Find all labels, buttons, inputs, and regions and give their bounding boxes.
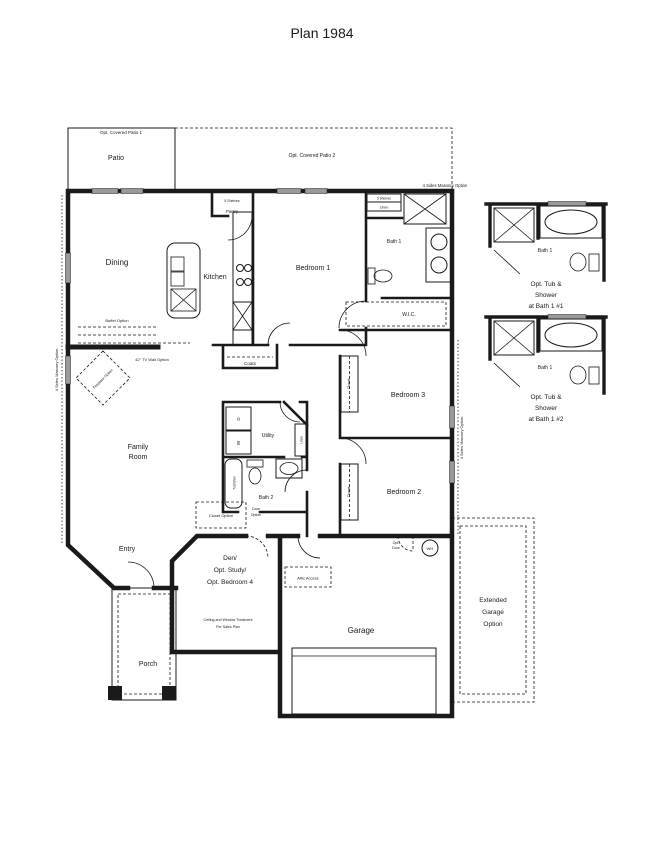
tub-icon <box>545 210 597 234</box>
porch-column <box>162 686 176 700</box>
dining-options: Buffet Option 42" TV Wall Option Firepla… <box>76 318 190 405</box>
bedroom3-label: Bedroom 3 <box>391 392 425 399</box>
family-room-label1: Family <box>128 444 149 451</box>
window <box>66 356 71 384</box>
door-option-label1: Door <box>252 507 261 511</box>
closet3-label: Closet <box>347 378 351 390</box>
bath2-label: Bath 2 <box>259 495 274 501</box>
bath2-fixtures: Tub/Shwr Bath 2 <box>225 459 302 508</box>
room-labels: Dining Kitchen Bedroom 1 Bedroom 3 Bedro… <box>106 258 426 668</box>
floor-plan-canvas: Plan 1984 Opt. Covered Patio 1 Patio Opt… <box>0 0 650 842</box>
coats-label: Coats <box>244 361 257 366</box>
garage-door <box>292 648 436 714</box>
door-option-swing <box>246 536 268 558</box>
patio2-label: Opt. Covered Patio 2 <box>289 153 336 159</box>
opt-door-label2: Door <box>392 546 401 550</box>
refrigerator-x <box>233 302 252 330</box>
porch-column <box>108 686 122 700</box>
entry-label: Entry <box>119 546 136 553</box>
bedroom2-label: Bedroom 2 <box>387 489 421 496</box>
den-label2: Opt. Study/ <box>214 567 247 574</box>
door-swing <box>280 402 300 422</box>
sink-icon <box>280 463 298 475</box>
door-swing <box>298 536 320 558</box>
porch-label: Porch <box>139 661 157 668</box>
porch-inner <box>118 594 170 694</box>
detail1-caption2: Shower <box>535 292 558 299</box>
tub-label: Tub/Shwr <box>233 475 237 489</box>
patio1-header-label: Opt. Covered Patio 1 <box>100 130 143 135</box>
den-area: Den/ Opt. Study/ Opt. Bedroom 4 Ceiling … <box>204 555 254 629</box>
wic-label: W.I.C. <box>402 312 416 318</box>
toilet-tank-icon <box>247 460 263 467</box>
masonry-right-label: 4 Sides Masonry Option <box>459 417 464 460</box>
utility-fixtures: D W Linen Utility <box>226 407 306 456</box>
floor-plan-page: Plan 1984 Opt. Covered Patio 1 Patio Opt… <box>0 0 650 842</box>
linen-shelves-label: 5 Shelves <box>377 197 391 201</box>
door-swing <box>340 330 366 356</box>
door-swing <box>339 301 366 328</box>
detail-bath-option-1: Bath 1 Opt. Tub & Shower at Bath 1 #1 <box>486 202 606 311</box>
window <box>66 253 71 283</box>
bath1-label: Bath 1 <box>387 239 402 245</box>
pantry-shelves-label: 5 Shelves <box>224 199 240 203</box>
den-note1: Ceiling and Window Treatment <box>204 618 253 622</box>
shower-x <box>494 208 534 242</box>
ext-garage-label1: Extended <box>479 597 507 604</box>
opt-door-label1: Opt. <box>393 541 400 545</box>
cooktop-burner-icon <box>245 265 252 272</box>
window <box>548 315 586 320</box>
closet2-label: Closet <box>347 486 351 498</box>
page-title: Plan 1984 <box>290 25 353 41</box>
attic-access-label: Attic Access <box>297 576 319 581</box>
garage-fixtures: Attic Access WH Opt. Door <box>285 536 438 714</box>
utility-label: Utility <box>262 433 275 439</box>
tub-platform <box>540 206 602 238</box>
door-swing <box>340 438 366 464</box>
detail1-door <box>494 250 520 274</box>
wic-shelves <box>346 302 446 326</box>
cooktop-burner-icon <box>237 279 244 286</box>
door-swing <box>268 323 290 345</box>
exterior-wall-path <box>68 191 452 716</box>
window <box>277 189 301 194</box>
vanity-counter <box>426 228 452 282</box>
cooktop-burner-icon <box>237 265 244 272</box>
fireplace-option-label: Fireplace Option <box>92 368 113 389</box>
detail2-door <box>494 363 520 387</box>
washer-label: W <box>236 440 241 445</box>
buffet-option-label: Buffet Option <box>105 318 128 323</box>
detail1-caption3: at Bath 1 #1 <box>528 303 563 310</box>
shower-x <box>404 194 446 224</box>
extended-garage-option: Extended Garage Option <box>452 518 534 702</box>
pantry-area: 5 Shelves Pantry <box>224 199 240 214</box>
porch-structure <box>108 588 176 700</box>
tub-platform <box>540 319 602 351</box>
toilet-bowl-icon <box>570 366 586 384</box>
door-swing <box>285 470 307 492</box>
window <box>305 189 327 194</box>
toilet-bowl-icon <box>374 270 392 282</box>
island-sink-icon <box>171 272 184 286</box>
dishwasher-x <box>171 289 196 311</box>
detail2-room-label: Bath 1 <box>538 365 553 371</box>
window <box>121 189 143 194</box>
dryer-label: D <box>236 417 241 421</box>
window <box>450 406 455 428</box>
family-room-label2: Room <box>129 454 148 461</box>
garage-label: Garage <box>348 626 375 635</box>
patio1-label: Patio <box>108 155 124 162</box>
door-option-label2: Option <box>251 513 262 517</box>
detail2-caption3: at Bath 1 #2 <box>528 416 563 423</box>
ext-garage-label2: Garage <box>482 609 504 616</box>
sink-icon <box>431 234 447 250</box>
window <box>450 461 455 483</box>
detail1-room-label: Bath 1 <box>538 248 553 254</box>
buffet-dashes <box>78 327 190 343</box>
door-swing <box>128 562 154 588</box>
den-label3: Opt. Bedroom 4 <box>207 579 253 586</box>
patio-area: Opt. Covered Patio 1 Patio Opt. Covered … <box>68 128 452 191</box>
ext-garage-label3: Option <box>483 621 503 628</box>
bedroom1-label: Bedroom 1 <box>296 265 330 272</box>
sink-icon <box>431 257 447 273</box>
window <box>92 189 118 194</box>
water-heater-label: WH <box>427 546 434 551</box>
masonry-left-label: 4 Sides Masonry Option <box>54 349 59 392</box>
bath1-fixtures: 5 Shelves Linen Bath 1 <box>367 194 452 284</box>
shower-x <box>494 321 534 355</box>
island-sink-icon <box>171 257 184 271</box>
dining-label: Dining <box>106 258 129 267</box>
detail2-caption1: Opt. Tub & <box>530 394 562 401</box>
toilet-tank-icon <box>589 254 599 271</box>
tub-icon <box>545 323 597 347</box>
detail1-caption1: Opt. Tub & <box>530 281 562 288</box>
linen-label: Linen <box>380 206 389 210</box>
wic-area: W.I.C. <box>346 302 446 326</box>
toilet-tank-icon <box>589 367 599 384</box>
den-label1: Den/ <box>223 555 237 562</box>
window <box>548 202 586 207</box>
toilet-bowl-icon <box>570 253 586 271</box>
exterior-walls <box>68 191 452 716</box>
kitchen-label: Kitchen <box>203 274 226 281</box>
porch-outline <box>112 588 176 700</box>
den-note2: Per Sales Plan <box>216 625 240 629</box>
entry-den-options: Closet Option Door Option <box>196 502 268 558</box>
masonry-top-label: 4 Sides Masonry Option <box>423 183 468 188</box>
pantry-label: Pantry <box>226 209 239 214</box>
closet-option-label: Closet Option <box>209 513 233 518</box>
toilet-bowl-icon <box>249 468 261 484</box>
cooktop-burner-icon <box>245 279 252 286</box>
coats-closet: Coats <box>227 357 273 366</box>
tv-wall-option-label: 42" TV Wall Option <box>135 357 169 362</box>
detail-bath-option-2: Bath 1 Opt. Tub & Shower at Bath 1 #2 <box>486 315 606 424</box>
patio2-outline <box>175 128 452 191</box>
kitchen-island <box>167 243 200 318</box>
door-swing <box>228 216 252 240</box>
detail2-caption2: Shower <box>535 405 558 412</box>
linen2-label: Linen <box>300 436 304 444</box>
